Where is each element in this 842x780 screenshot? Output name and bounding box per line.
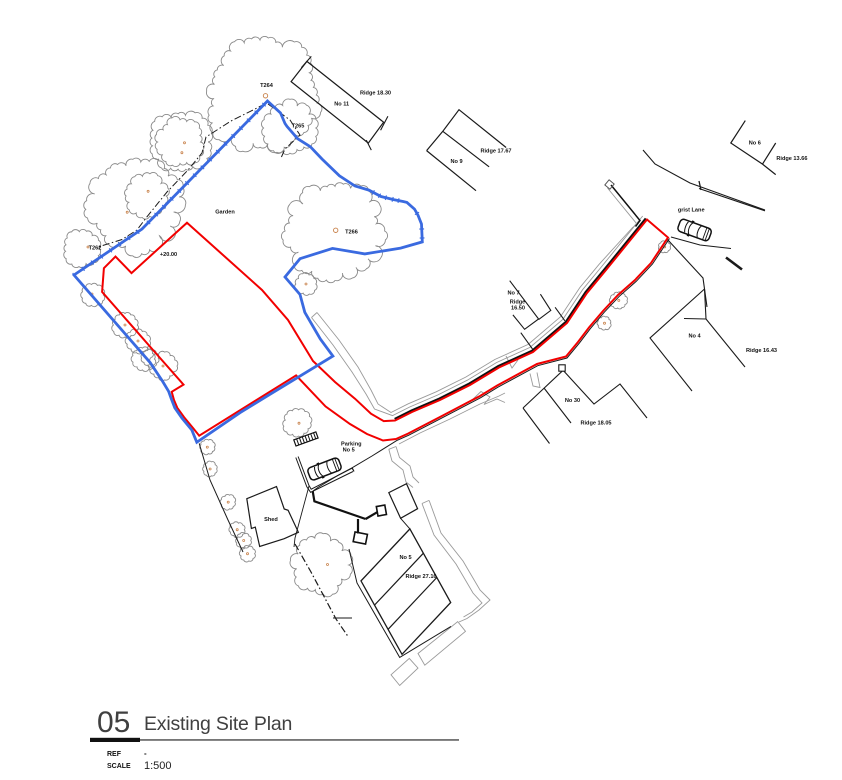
svg-text:Shed: Shed [264,517,278,523]
svg-text:No 5: No 5 [343,448,355,454]
svg-text:16.50: 16.50 [511,306,525,312]
svg-text:Ridge 18.05: Ridge 18.05 [580,421,611,427]
svg-text:REF: REF [107,751,122,758]
svg-text:Ridge: Ridge [510,299,526,305]
svg-text:No 6: No 6 [749,141,761,147]
svg-text:T266: T266 [345,230,358,236]
svg-text:No 5: No 5 [399,555,411,561]
svg-text:No 9: No 9 [450,159,462,165]
svg-text:SCALE: SCALE [107,763,131,770]
svg-text:Ridge 17.67: Ridge 17.67 [480,149,511,155]
svg-text:No 7: No 7 [507,291,519,297]
svg-text:T262: T262 [89,246,102,252]
svg-text:No 4: No 4 [688,334,701,340]
svg-text:T265: T265 [292,124,305,130]
svg-text:Parking: Parking [341,442,362,448]
svg-text:No 30: No 30 [565,398,580,404]
svg-text:Ridge 16.43: Ridge 16.43 [746,348,777,354]
svg-text:Existing Site Plan: Existing Site Plan [144,713,292,735]
svg-text:05: 05 [97,706,130,739]
svg-text:Ridge 27.16: Ridge 27.16 [405,574,436,580]
svg-text:T264: T264 [260,83,274,89]
svg-text:Ridge 18.30: Ridge 18.30 [360,91,391,97]
svg-text:+20.00: +20.00 [160,252,177,258]
svg-text:Ridge 13.66: Ridge 13.66 [776,156,807,162]
svg-text:No 11: No 11 [334,102,349,108]
svg-text:Garden: Garden [215,210,235,216]
svg-text:1:500: 1:500 [144,760,172,772]
svg-text:grist Lane: grist Lane [678,207,705,213]
svg-text:-: - [144,749,147,758]
